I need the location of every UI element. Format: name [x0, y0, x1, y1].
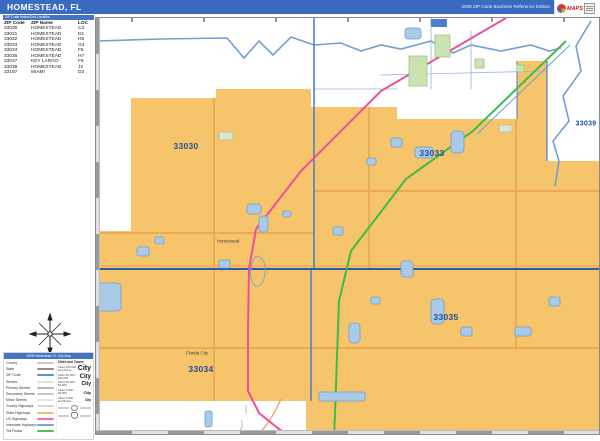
publisher-logo: MAPS	[554, 0, 600, 17]
table-row: 33187MIAMID3	[3, 70, 94, 76]
city-name-label: Homestead	[217, 239, 239, 244]
legend-item-label: County Highways	[6, 404, 33, 408]
map-label-layer: 3303033033330393303533034HomesteadFlorid…	[96, 18, 599, 434]
city-sample-text: City	[83, 390, 91, 395]
legend-item-label: Primary Streets	[6, 386, 30, 390]
city-sample-text: City	[78, 365, 91, 372]
us-highway-shield-icon	[71, 412, 78, 419]
map-sheet: { "title_bar": { "title": "HOMESTEAD, FL…	[0, 0, 600, 441]
city-sample-text: City	[85, 398, 91, 402]
highway-shield-sample-row	[58, 412, 91, 420]
city-sample-text: City	[80, 374, 91, 380]
legend-cities-column: Cities and Towns Cities 100,000 and Abov…	[56, 359, 93, 434]
legend-line-swatch	[37, 430, 54, 432]
legend-item-label: Streets	[6, 380, 17, 384]
page-title: HOMESTEAD, FL	[7, 0, 82, 14]
city-class-label: Cities 5,000 - 25,000	[58, 389, 78, 395]
city-class-row: Cities 25,000 - 50,000City	[58, 381, 91, 389]
legend-line-swatch	[37, 381, 54, 383]
city-class-label: Cities 50,000 - 100,000	[58, 374, 78, 380]
legend-line-swatch	[37, 412, 54, 414]
city-class-row: Cities 5,000 - 25,000City	[58, 388, 91, 396]
city-name-label: Florida City	[186, 351, 208, 356]
legend-item-label: US Highways	[6, 417, 27, 421]
logo-star-icon	[557, 4, 566, 13]
legend-item-label: State Highways	[6, 411, 30, 415]
legend-line-swatch	[37, 362, 54, 364]
zip-name-cell: MIAMI	[31, 70, 78, 76]
zip-code-label: 33034	[188, 364, 213, 374]
shield-line	[58, 407, 69, 409]
shield-line	[80, 415, 91, 417]
shield-line	[58, 415, 69, 417]
map-canvas: 3303033033330393303533034HomesteadFlorid…	[95, 17, 600, 435]
zip-code-label: 33030	[173, 141, 198, 151]
city-class-label: Cities 25,000 - 50,000	[58, 381, 78, 387]
legend-line-swatch	[37, 399, 54, 401]
legend-line-swatch	[37, 393, 54, 395]
logo-text: MAPS	[567, 6, 583, 12]
legend-item-label: County	[6, 361, 17, 365]
city-sample-text: City	[82, 381, 91, 387]
city-class-row: Cities 50,000 - 100,000City	[58, 373, 91, 381]
legend-line-swatch	[37, 374, 54, 376]
logo-book-icon	[584, 3, 595, 14]
city-class-row: Cities 5,000 and BelowCity	[58, 396, 91, 404]
shield-line	[80, 407, 91, 409]
legend-item-label: ZIP Code	[6, 373, 21, 377]
city-class-list: Cities 100,000 and AboveCityCities 50,00…	[58, 365, 91, 404]
city-class-label: Cities 100,000 and Above	[58, 366, 78, 372]
zip-code-label: 33039	[576, 121, 597, 128]
legend-line-swatch	[37, 418, 54, 420]
legend-item-label: Secondary Streets	[6, 392, 35, 396]
city-class-label: Cities 5,000 and Below	[58, 397, 78, 403]
city-class-row: Cities 100,000 and AboveCity	[58, 365, 91, 373]
grid-loc-cell: D3	[78, 70, 93, 76]
zip-code-label: 33033	[419, 148, 444, 158]
legend-item-label: Interstate Highways	[6, 423, 37, 427]
legend-item-label: State	[6, 367, 14, 371]
map-legend: 2008 Homestead, FL City Map CountyStateZ…	[3, 352, 94, 440]
legend-line-swatch	[37, 368, 54, 370]
legend-item-label: Minor Streets	[6, 398, 27, 402]
compass-rose-icon	[28, 312, 72, 356]
edition-label: 2008 ZIP Code Business Reference Edition	[461, 0, 550, 14]
title-bar: HOMESTEAD, FL 2008 ZIP Code Business Ref…	[0, 0, 600, 14]
legend-line-samples: CountyStateZIP CodeStreetsPrimary Street…	[4, 359, 56, 434]
county-highway-shield-icon	[71, 405, 78, 411]
legend-line-swatch	[37, 424, 54, 426]
zip-table-body: 33030HOMESTEADC333031HOMESTEADD133032HOM…	[3, 26, 94, 76]
legend-line-item: Toll Roads	[6, 428, 54, 434]
zip-code-index-table: ZIP Code Index/Grid Location ZIP Code ZI…	[3, 15, 94, 76]
legend-line-swatch	[37, 405, 54, 407]
bottom-scale-ruler	[96, 430, 599, 434]
highway-shield-sample-row	[58, 404, 91, 412]
legend-item-label: Toll Roads	[6, 429, 22, 433]
zip-code-cell: 33187	[4, 70, 31, 76]
legend-line-swatch	[37, 387, 54, 389]
left-ruler-bar	[96, 18, 100, 434]
zip-code-label: 33035	[433, 312, 458, 322]
